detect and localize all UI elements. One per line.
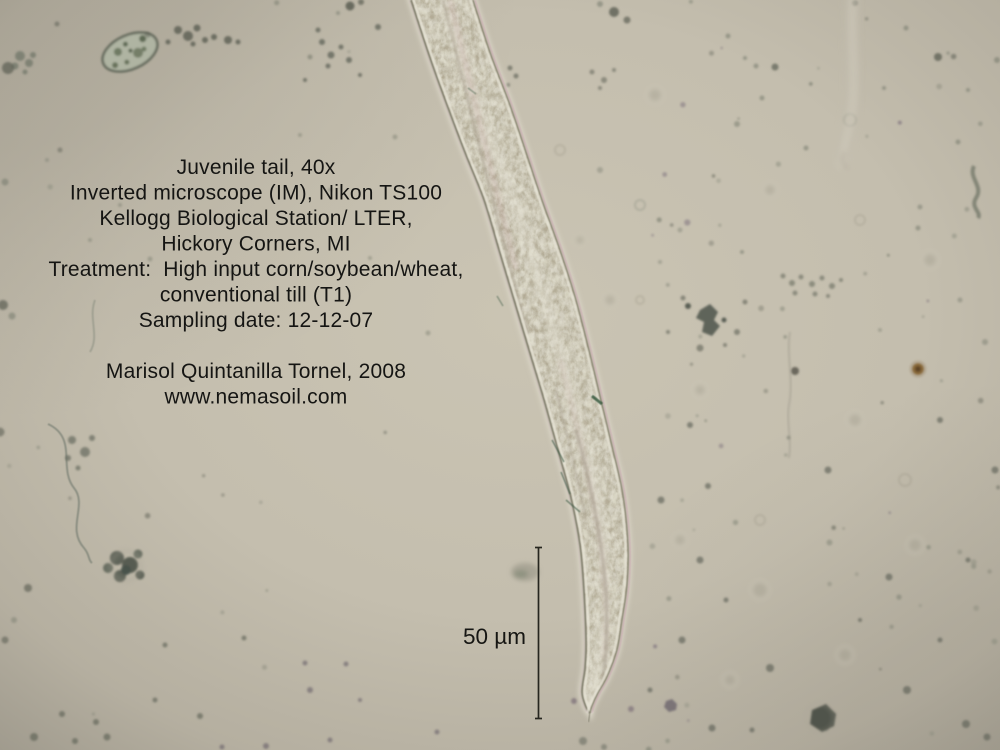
svg-text:50 µm: 50 µm [463, 624, 526, 649]
svg-text:Marisol Quintanilla Tornel, 20: Marisol Quintanilla Tornel, 2008 [106, 360, 406, 383]
svg-text:www.nemasoil.com: www.nemasoil.com [164, 386, 348, 409]
svg-text:Juvenile tail, 40x: Juvenile tail, 40x [177, 156, 336, 179]
svg-text:Hickory Corners, MI: Hickory Corners, MI [161, 233, 350, 256]
svg-text:conventional till (T1): conventional till (T1) [160, 284, 352, 307]
svg-text:Sampling date: 12-12-07: Sampling date: 12-12-07 [139, 309, 374, 332]
svg-text:Kellogg Biological Station/ LT: Kellogg Biological Station/ LTER, [99, 207, 412, 230]
svg-text:Treatment: High input corn/so: Treatment: High input corn/soybean/wheat… [48, 258, 463, 281]
svg-text:Inverted microscope (IM), Niko: Inverted microscope (IM), Nikon TS100 [70, 182, 442, 205]
